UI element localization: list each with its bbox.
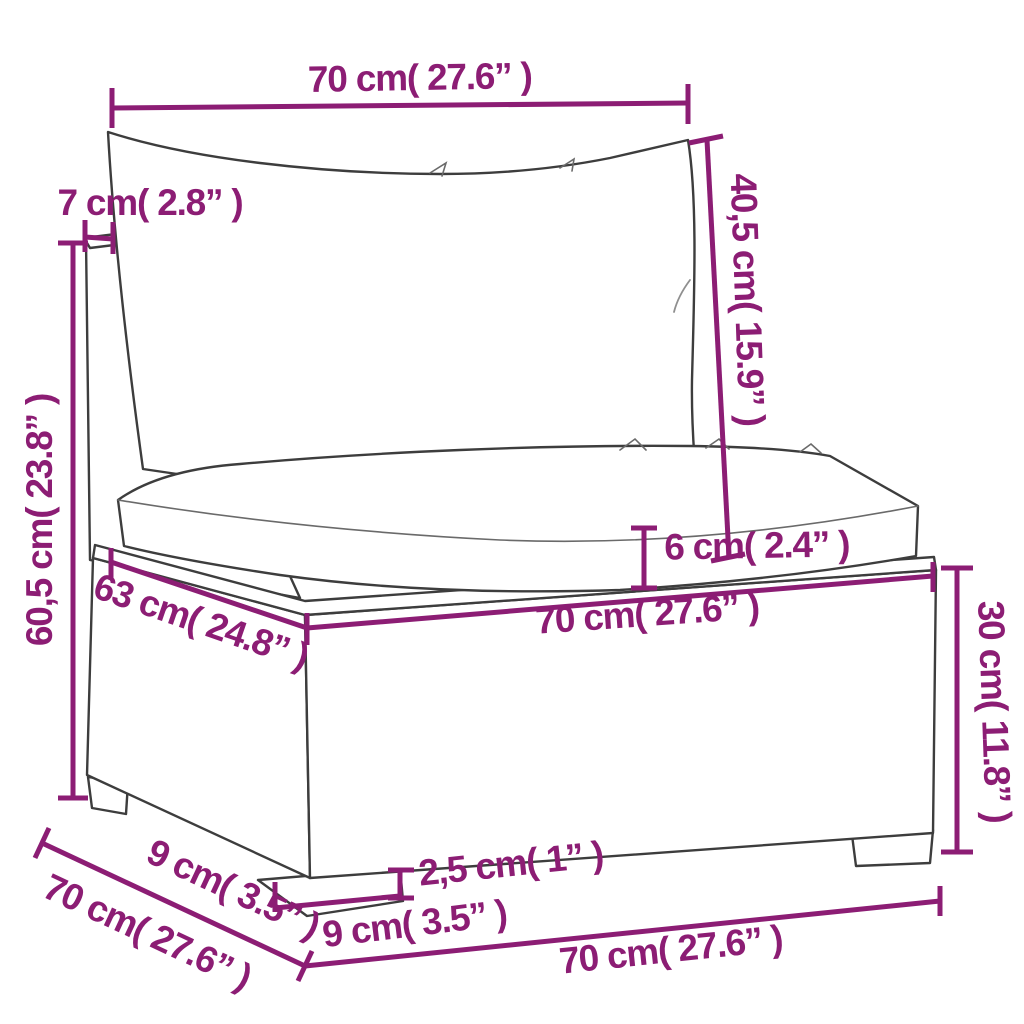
label-cushion-thickness: 6 cm( 2.4” ) [664,523,850,567]
label-base-height: 30 cm( 11.8” ) [970,600,1019,823]
sofa-section-dimension-drawing: 70 cm( 27.6” ) 7 cm( 2.8” ) 40,5 cm( 15.… [0,0,1024,1024]
label-backrest-height: 40,5 cm( 15.9” ) [723,173,773,427]
product-dimension-diagram: 70 cm( 27.6” ) 7 cm( 2.8” ) 40,5 cm( 15.… [0,0,1024,1024]
dim-total-height [58,243,88,798]
seat-cushion [118,446,918,591]
label-back-post-depth: 7 cm( 2.8” ) [57,182,242,223]
dim-base-height [941,568,973,852]
label-total-height: 60,5 cm( 23.8” ) [19,394,60,646]
label-top-width: 70 cm( 27.6” ) [308,55,533,100]
